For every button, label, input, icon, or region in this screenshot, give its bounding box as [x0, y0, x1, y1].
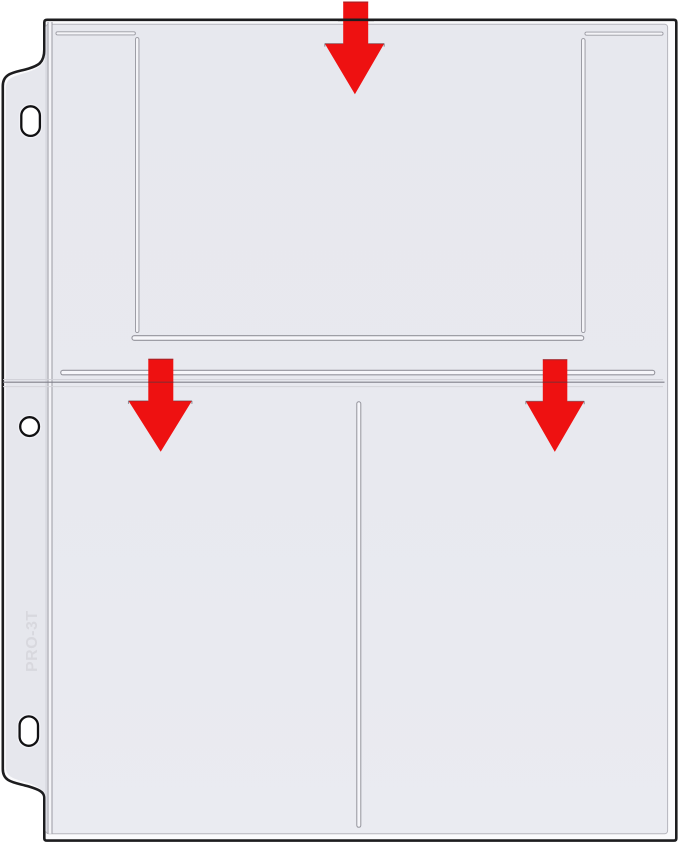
svg-text:PRO-3T: PRO-3T: [24, 610, 41, 672]
